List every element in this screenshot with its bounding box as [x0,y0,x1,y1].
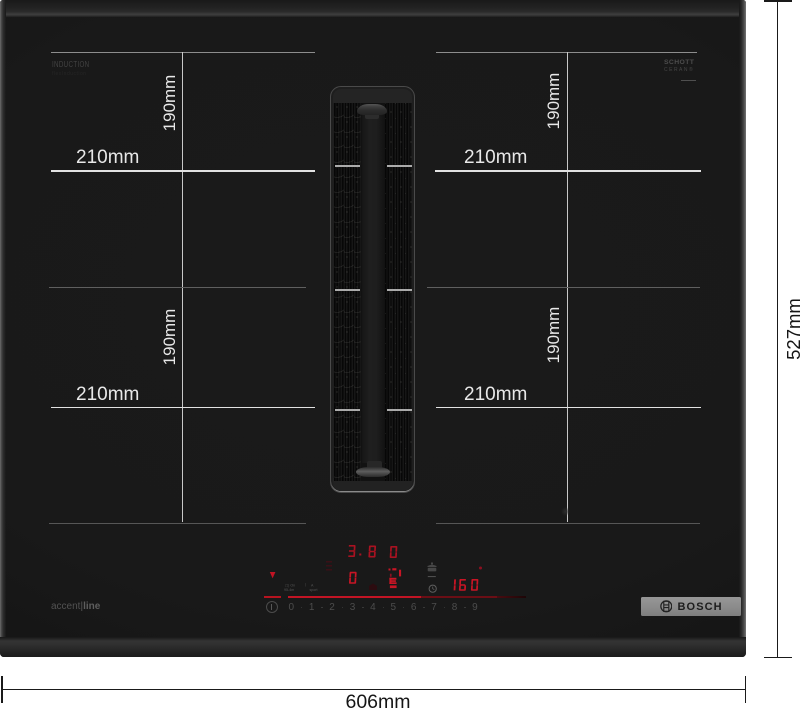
svg-text:95-4m: 95-4m [284,588,294,592]
svg-text:|: | [305,583,306,587]
svg-text:▢| On: ▢| On [285,584,295,588]
svg-text:sport: sport [310,588,318,592]
svg-text:A: A [311,584,314,588]
